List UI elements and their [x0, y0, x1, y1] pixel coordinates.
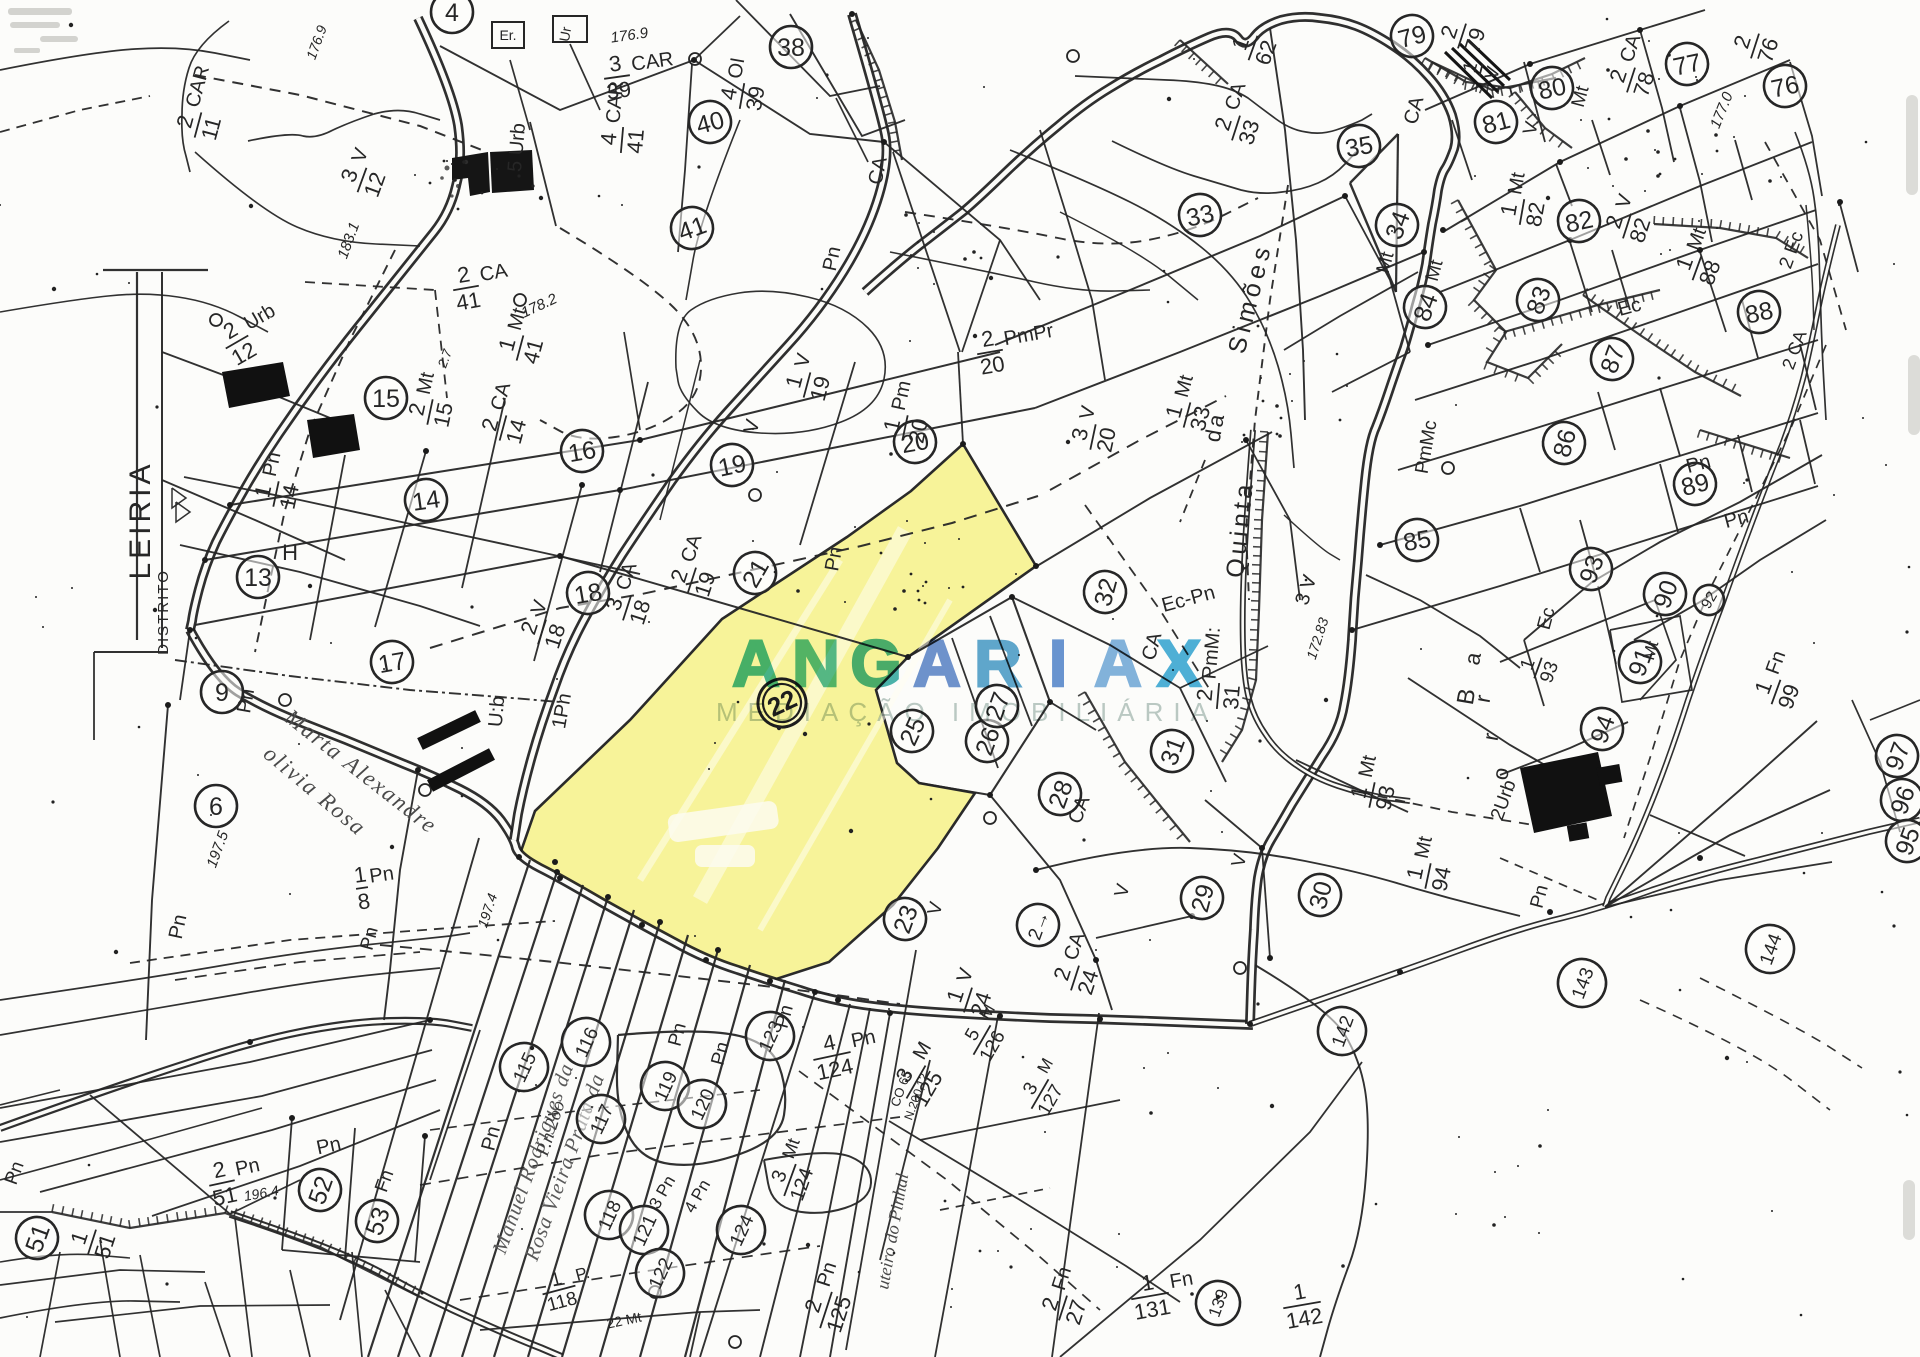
- svg-text:20: 20: [1091, 425, 1121, 454]
- svg-text:G: G: [850, 626, 901, 700]
- svg-text:13: 13: [244, 564, 272, 592]
- svg-text:31: 31: [1218, 684, 1245, 711]
- svg-text:Pn: Pn: [821, 545, 847, 573]
- svg-text:DISTRITO: DISTRITO: [155, 569, 172, 655]
- svg-text:R: R: [974, 626, 1022, 700]
- svg-text:X: X: [1157, 626, 1201, 700]
- svg-text:A: A: [1094, 626, 1142, 700]
- svg-text:20: 20: [903, 416, 933, 445]
- svg-text:16: 16: [566, 436, 598, 468]
- svg-text:19: 19: [716, 449, 749, 482]
- svg-text:CAR: CAR: [602, 80, 628, 124]
- svg-text:Fn: Fn: [1168, 1267, 1195, 1293]
- svg-text:41: 41: [454, 287, 482, 316]
- svg-text:14: 14: [410, 485, 442, 517]
- svg-text:6: 6: [209, 793, 223, 821]
- svg-text:da: da: [1200, 410, 1230, 444]
- svg-text:Ur: Ur: [556, 25, 574, 43]
- svg-text:LEIRIA: LEIRIA: [124, 460, 157, 579]
- svg-text:41: 41: [622, 128, 649, 155]
- svg-text:A: A: [913, 626, 961, 700]
- svg-text:U:b: U:b: [485, 695, 510, 728]
- svg-text:51: 51: [210, 1181, 239, 1211]
- svg-text:PmM:: PmM:: [1198, 626, 1224, 680]
- svg-text:Pn: Pn: [368, 863, 395, 888]
- svg-text:77: 77: [1671, 48, 1704, 81]
- svg-text:OI: OI: [724, 56, 749, 81]
- svg-text:4: 4: [445, 0, 459, 27]
- svg-text:15: 15: [428, 400, 458, 429]
- svg-text:94: 94: [1426, 864, 1456, 893]
- svg-text:18: 18: [572, 578, 604, 610]
- svg-text:I: I: [1049, 626, 1067, 700]
- svg-text:5 Urb: 5 Urb: [504, 122, 530, 173]
- svg-text:N: N: [792, 626, 840, 700]
- svg-text:17: 17: [376, 647, 408, 679]
- svg-text:4: 4: [596, 132, 622, 146]
- svg-text:39: 39: [741, 84, 770, 112]
- svg-text:20: 20: [978, 351, 1006, 380]
- svg-text:A: A: [732, 626, 780, 700]
- svg-text:38: 38: [777, 34, 805, 62]
- svg-text:MEDIAÇÃO IMOBILIÁRIA: MEDIAÇÃO IMOBILIÁRIA: [716, 697, 1218, 727]
- svg-text:33: 33: [1184, 199, 1217, 232]
- svg-text:93: 93: [1370, 783, 1400, 812]
- svg-text:82: 82: [1563, 205, 1596, 238]
- svg-text:Mt: Mt: [1504, 170, 1530, 196]
- svg-text:Er.: Er.: [499, 27, 516, 43]
- svg-text:80: 80: [1536, 72, 1569, 105]
- svg-text:82: 82: [1521, 200, 1550, 228]
- svg-text:88: 88: [1743, 296, 1776, 329]
- svg-text:9: 9: [215, 679, 229, 707]
- svg-text:35: 35: [1343, 131, 1375, 163]
- svg-text:Pn: Pn: [233, 687, 259, 715]
- svg-text:85: 85: [1401, 525, 1433, 557]
- svg-text:15: 15: [372, 385, 400, 413]
- svg-text:14: 14: [274, 482, 304, 511]
- svg-text:H: H: [282, 540, 298, 565]
- svg-text:76: 76: [1769, 70, 1802, 103]
